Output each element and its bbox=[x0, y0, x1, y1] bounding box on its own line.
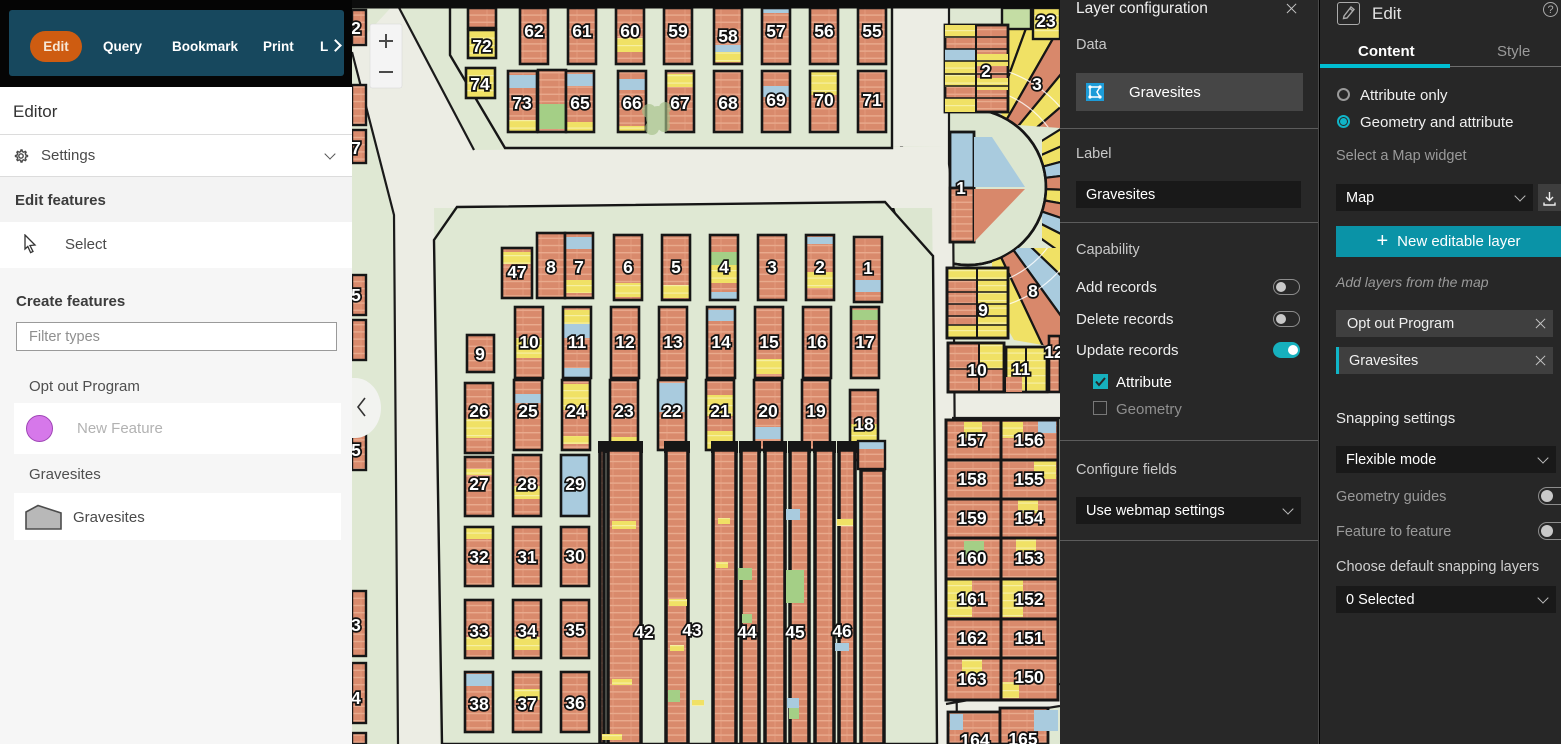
svg-text:7: 7 bbox=[574, 257, 584, 277]
svg-text:46: 46 bbox=[832, 621, 852, 641]
svg-text:23: 23 bbox=[1036, 11, 1056, 31]
svg-text:9: 9 bbox=[978, 300, 988, 320]
svg-text:23: 23 bbox=[614, 401, 634, 421]
svg-text:9: 9 bbox=[475, 344, 485, 364]
svg-text:156: 156 bbox=[1014, 430, 1043, 450]
svg-text:152: 152 bbox=[1014, 589, 1043, 609]
svg-text:10: 10 bbox=[519, 332, 539, 352]
svg-text:4: 4 bbox=[719, 257, 729, 277]
svg-text:13: 13 bbox=[663, 332, 683, 352]
svg-text:31: 31 bbox=[517, 547, 537, 567]
svg-text:151: 151 bbox=[1014, 628, 1043, 648]
svg-text:12: 12 bbox=[1044, 342, 1060, 362]
svg-text:69: 69 bbox=[766, 90, 786, 110]
svg-text:56: 56 bbox=[814, 21, 834, 41]
svg-text:153: 153 bbox=[1014, 548, 1043, 568]
svg-text:14: 14 bbox=[711, 332, 731, 352]
svg-text:47: 47 bbox=[507, 262, 526, 282]
svg-text:21: 21 bbox=[710, 401, 730, 421]
svg-text:16: 16 bbox=[807, 332, 827, 352]
svg-text:5: 5 bbox=[352, 440, 361, 460]
svg-text:165: 165 bbox=[1008, 729, 1037, 744]
svg-text:29: 29 bbox=[565, 474, 585, 494]
svg-text:30: 30 bbox=[565, 546, 585, 566]
svg-text:11: 11 bbox=[568, 332, 587, 352]
svg-text:1: 1 bbox=[956, 178, 966, 198]
svg-text:57: 57 bbox=[766, 21, 785, 41]
svg-text:71: 71 bbox=[862, 90, 882, 110]
svg-text:19: 19 bbox=[806, 401, 826, 421]
svg-text:28: 28 bbox=[517, 474, 537, 494]
svg-text:59: 59 bbox=[668, 21, 688, 41]
svg-text:35: 35 bbox=[565, 620, 585, 640]
svg-text:33: 33 bbox=[469, 621, 489, 641]
svg-text:22: 22 bbox=[662, 401, 682, 421]
svg-text:42: 42 bbox=[634, 622, 654, 642]
svg-text:67: 67 bbox=[670, 93, 689, 113]
svg-text:157: 157 bbox=[957, 430, 986, 450]
svg-text:55: 55 bbox=[862, 21, 882, 41]
svg-text:8: 8 bbox=[546, 257, 556, 277]
svg-text:11: 11 bbox=[1012, 359, 1031, 379]
svg-text:4: 4 bbox=[352, 688, 361, 708]
svg-text:159: 159 bbox=[957, 508, 986, 528]
svg-text:74: 74 bbox=[470, 74, 490, 94]
svg-text:37: 37 bbox=[517, 694, 536, 714]
svg-text:32: 32 bbox=[469, 547, 489, 567]
svg-text:5: 5 bbox=[352, 285, 361, 305]
svg-text:58: 58 bbox=[718, 26, 738, 46]
svg-text:158: 158 bbox=[957, 469, 986, 489]
svg-text:2: 2 bbox=[815, 257, 825, 277]
svg-text:15: 15 bbox=[759, 332, 779, 352]
svg-text:10: 10 bbox=[967, 360, 987, 380]
svg-text:162: 162 bbox=[957, 628, 986, 648]
svg-text:65: 65 bbox=[570, 93, 590, 113]
svg-text:27: 27 bbox=[469, 474, 488, 494]
svg-text:8: 8 bbox=[1028, 281, 1038, 301]
svg-text:150: 150 bbox=[1014, 667, 1043, 687]
svg-text:7: 7 bbox=[352, 138, 361, 158]
svg-text:160: 160 bbox=[957, 548, 986, 568]
svg-text:26: 26 bbox=[469, 401, 489, 421]
svg-text:36: 36 bbox=[565, 693, 585, 713]
svg-text:155: 155 bbox=[1014, 469, 1043, 489]
svg-text:62: 62 bbox=[524, 21, 544, 41]
svg-text:3: 3 bbox=[767, 257, 777, 277]
svg-text:61: 61 bbox=[572, 21, 592, 41]
svg-text:66: 66 bbox=[622, 93, 642, 113]
svg-text:161: 161 bbox=[957, 589, 986, 609]
svg-text:3: 3 bbox=[352, 615, 361, 635]
svg-text:25: 25 bbox=[518, 401, 538, 421]
svg-text:2: 2 bbox=[981, 61, 991, 81]
svg-text:60: 60 bbox=[620, 21, 640, 41]
svg-text:18: 18 bbox=[854, 414, 874, 434]
svg-text:68: 68 bbox=[718, 93, 738, 113]
svg-text:1: 1 bbox=[863, 258, 873, 278]
svg-text:164: 164 bbox=[960, 730, 989, 744]
svg-text:73: 73 bbox=[512, 93, 532, 113]
svg-text:72: 72 bbox=[472, 36, 492, 56]
svg-text:12: 12 bbox=[615, 332, 635, 352]
svg-text:34: 34 bbox=[517, 621, 537, 641]
svg-text:38: 38 bbox=[469, 694, 489, 714]
svg-text:45: 45 bbox=[785, 622, 805, 642]
svg-text:20: 20 bbox=[758, 401, 778, 421]
svg-text:70: 70 bbox=[814, 90, 834, 110]
svg-text:43: 43 bbox=[682, 620, 702, 640]
svg-text:5: 5 bbox=[671, 257, 681, 277]
svg-text:17: 17 bbox=[855, 332, 874, 352]
svg-text:163: 163 bbox=[957, 669, 986, 689]
svg-text:6: 6 bbox=[623, 257, 633, 277]
svg-text:154: 154 bbox=[1014, 508, 1043, 528]
svg-text:24: 24 bbox=[566, 401, 586, 421]
svg-text:44: 44 bbox=[737, 622, 757, 642]
svg-text:2: 2 bbox=[352, 18, 361, 38]
svg-text:3: 3 bbox=[1032, 74, 1042, 94]
